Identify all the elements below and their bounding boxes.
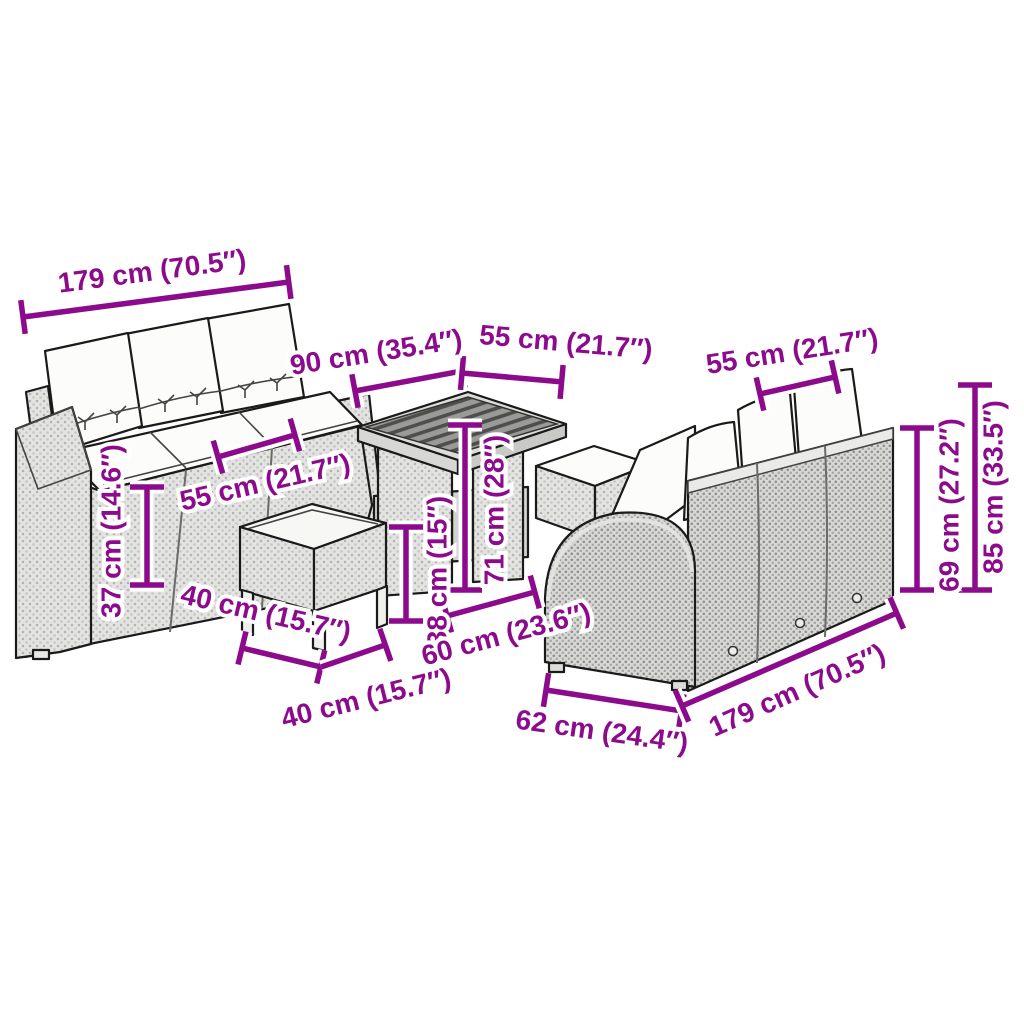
rivet <box>729 647 738 656</box>
dimension-diagram: 179 cm (70.5″) 90 cm (35.4″) 55 cm (21.7… <box>0 0 1024 1024</box>
dim-seat-height-label: 37 cm (14.6″) <box>96 444 127 618</box>
rivet <box>853 594 862 603</box>
rivet <box>796 619 805 628</box>
dim-stool-width-label: 40 cm (15.7″) <box>278 662 454 734</box>
dim-table-width-line <box>460 356 563 399</box>
dim-table-height-label: 71 cm (28″) <box>479 435 510 585</box>
dim-right-sofa-seat-width-label: 55 cm (21.7″) <box>704 322 880 380</box>
dim-table-width-label: 55 cm (21.7″) <box>478 319 654 365</box>
right-sofa-foot <box>549 663 564 672</box>
dim-backrest-height-label: 69 cm (27.2″) <box>934 418 965 592</box>
left-sofa-left-armrest <box>16 407 91 658</box>
dim-stool-height-label: 38 cm (15″) <box>422 496 453 646</box>
stool-leg <box>377 586 387 628</box>
dim-backrest-height-line <box>900 428 934 590</box>
dim-total-height-label: 85 cm (33.5″) <box>978 400 1009 574</box>
left-sofa-foot <box>33 650 49 659</box>
right-sofa-armrest <box>545 512 695 687</box>
